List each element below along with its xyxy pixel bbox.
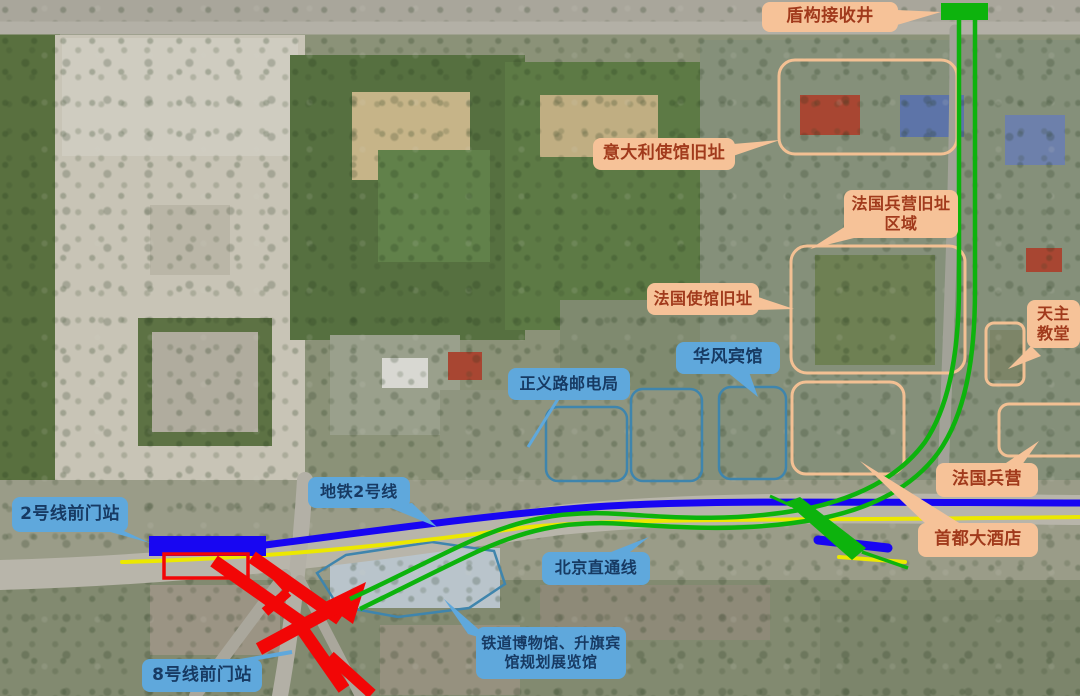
center-block-outline bbox=[631, 389, 702, 481]
french-barracks-area-region bbox=[792, 382, 904, 474]
shield-receiving-shaft-box bbox=[941, 3, 988, 20]
annotation-overlay bbox=[0, 0, 1080, 696]
heritage-region-outlines bbox=[779, 60, 1080, 474]
roads bbox=[0, 28, 1080, 696]
huafeng-hotel-block-outline bbox=[719, 387, 786, 479]
label-metro-line2: 地铁2号线 bbox=[308, 477, 410, 508]
label-railway-museum: 铁道博物馆、升旗宾馆规划展览馆 bbox=[476, 627, 626, 679]
label-french-barracks: 法国兵营 bbox=[936, 463, 1038, 497]
label-shield-receiving-shaft: 盾构接收井 bbox=[762, 2, 898, 32]
through-line-siding bbox=[839, 557, 905, 562]
satellite-map: 盾构接收井 意大利使馆旧址 法国兵营旧址区域 法国使馆旧址 天主教堂 华风宾馆 … bbox=[0, 0, 1080, 696]
label-line8-qianmen-station: 8号线前门站 bbox=[142, 659, 262, 692]
label-french-barracks-area: 法国兵营旧址区域 bbox=[844, 190, 958, 238]
label-catholic-church: 天主教堂 bbox=[1027, 300, 1080, 348]
french-embassy-region bbox=[791, 246, 965, 373]
label-capital-hotel: 首都大酒店 bbox=[918, 523, 1038, 557]
french-barracks-region bbox=[999, 404, 1080, 456]
label-line2-qianmen-station: 2号线前门站 bbox=[12, 497, 128, 532]
catholic-church-region bbox=[986, 323, 1024, 385]
italian-embassy-region bbox=[779, 60, 957, 154]
label-huafeng-hotel: 华风宾馆 bbox=[676, 342, 780, 374]
label-beijing-through-line: 北京直通线 bbox=[542, 552, 650, 585]
post-office-block-outline bbox=[546, 407, 627, 481]
label-zhengyi-post-office: 正义路邮电局 bbox=[508, 368, 630, 400]
label-italian-embassy: 意大利使馆旧址 bbox=[593, 138, 735, 170]
label-french-embassy: 法国使馆旧址 bbox=[647, 283, 759, 315]
